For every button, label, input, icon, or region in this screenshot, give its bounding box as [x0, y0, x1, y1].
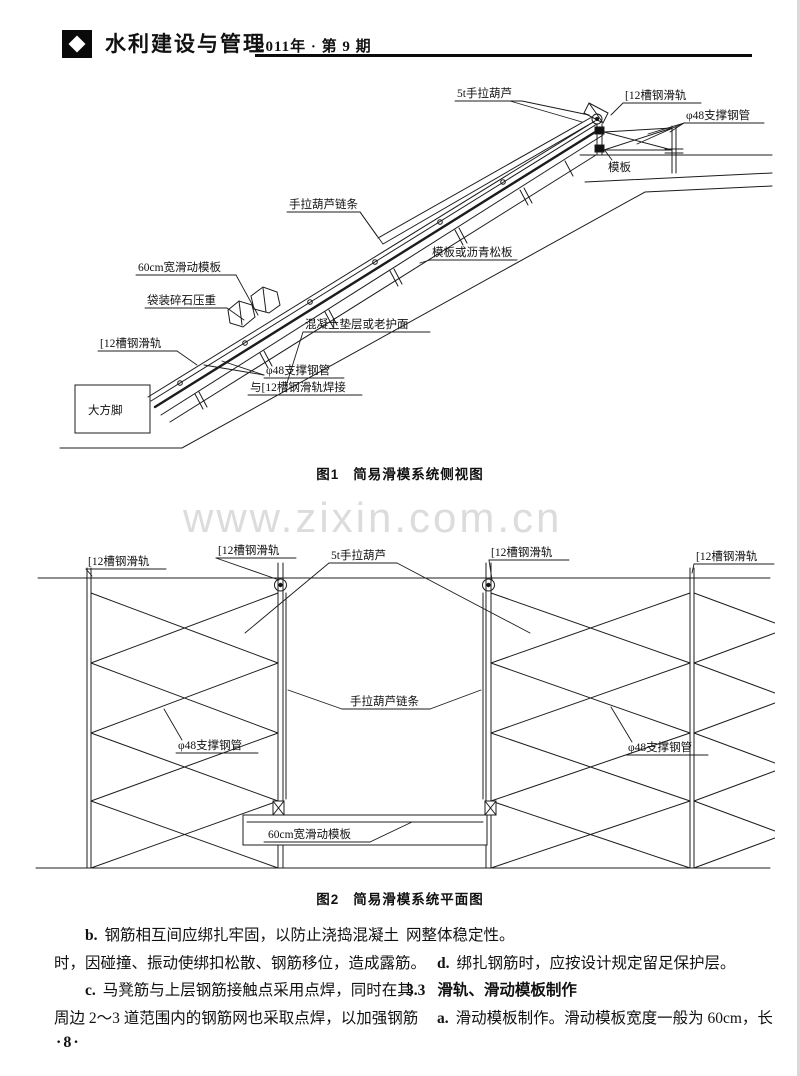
fig2-label-hoist: 5t手拉葫芦 — [331, 548, 386, 562]
fig1-label-support-pipe-weld-2: 与[12槽钢滑轨焊接 — [250, 380, 346, 394]
pulley-right — [483, 579, 495, 591]
fig1-label-hoist-chain: 手拉葫芦链条 — [289, 197, 358, 211]
figure2-caption-title: 简易滑模系统平面图 — [353, 892, 484, 907]
figure2-caption: 图2简易滑模系统平面图 — [0, 888, 800, 908]
rail-1 — [87, 568, 91, 868]
paragraph-line: 时，因碰撞、振动使绑扣松散、钢筋移位，造成露筋。 — [54, 950, 400, 978]
list-lead: a. — [437, 1010, 449, 1027]
fig2-label-rail-1: [12槽钢滑轨 — [88, 554, 150, 568]
section-number: 3.3 — [406, 982, 425, 999]
fig2-label-hoist-chain: 手拉葫芦链条 — [350, 694, 419, 708]
fig1-label-rail-top: [12槽钢滑轨 — [625, 88, 687, 102]
figure1-side-view-drawing: 5t手拉葫芦 [12槽钢滑轨 φ48支撑钢管 模板 手拉葫芦链条 模板或沥青松板… — [20, 70, 780, 500]
paragraph-line: a.滑动模板制作。滑动模板宽度一般为 60cm，长 — [406, 1005, 752, 1033]
watermark: www.zixin.com.cn — [183, 494, 562, 542]
journal-page: 水利建设与管理 2011年 · 第 9 期 — [0, 0, 800, 1076]
fig1-label-sliding-formwork: 60cm宽滑动模板 — [138, 260, 222, 274]
support-posts — [195, 161, 573, 409]
fig2-label-rail-2: [12槽钢滑轨 — [218, 543, 280, 557]
hoist-chain-lines — [378, 117, 595, 244]
scaffold-bracing-right — [491, 593, 690, 868]
figure1-caption-title: 简易滑模系统侧视图 — [353, 467, 484, 482]
figure2-caption-number: 图2 — [316, 892, 339, 907]
page-header: 水利建设与管理 2011年 · 第 9 期 — [60, 28, 760, 58]
fig1-label-concrete-cushion: 混凝土垫层或老护面 — [305, 317, 409, 331]
figure2-plan-view-drawing: [12槽钢滑轨 [12槽钢滑轨 5t手拉葫芦 [12槽钢滑轨 [12槽钢滑轨 手… — [30, 543, 775, 878]
berm-line-2 — [585, 173, 772, 182]
paragraph-line: c.马凳筋与上层钢筋接触点采用点焊，同时在其 — [54, 977, 400, 1005]
fig1-label-rail-bottom: [12槽钢滑轨 — [100, 336, 162, 350]
surface-board-line — [170, 155, 596, 422]
fig2-linework — [36, 558, 775, 868]
fig1-label-hoist: 5t手拉葫芦 — [457, 86, 512, 100]
paragraph-text: 周边 2～3 道范围内的钢筋网也采取点焊，以加强钢筋 — [54, 1010, 418, 1027]
rail-4 — [690, 568, 694, 868]
paragraph-line: b.钢筋相互间应绑扎牢固，以防止浇捣混凝土 — [54, 922, 400, 950]
journal-title: 水利建设与管理 — [105, 28, 266, 58]
pulley-left — [275, 579, 287, 591]
fig2-label-rail-3: [12槽钢滑轨 — [491, 545, 553, 559]
fig1-leaders — [98, 101, 764, 395]
fig1-label-support-pipe-weld-1: φ48支撑钢管 — [266, 363, 330, 377]
fig1-linework — [60, 101, 772, 448]
fig2-label-support-pipe-left: φ48支撑钢管 — [178, 738, 242, 752]
fig2-label-rail-4: [12槽钢滑轨 — [696, 549, 758, 563]
paragraph-line: 网整体稳定性。 — [406, 922, 752, 950]
page-number: ·8· — [56, 1034, 81, 1052]
paragraph-text: 时，因碰撞、振动使绑扣松散、钢筋移位，造成露筋。 — [54, 955, 426, 972]
section-title: 滑轨、滑动模板制作 — [437, 982, 577, 999]
body-column-right: 网整体稳定性。 d.绑扎钢筋时，应按设计规定留足保护层。 3.3滑轨、滑动模板制… — [406, 922, 752, 1032]
header-rule — [255, 54, 752, 57]
fig1-label-gravel-weight: 袋装碎石压重 — [147, 293, 216, 307]
paragraph-line: 周边 2～3 道范围内的钢筋网也采取点焊，以加强钢筋 — [54, 1005, 400, 1033]
scaffold-bracing-edge — [694, 593, 775, 868]
list-lead: b. — [85, 927, 98, 944]
list-lead: d. — [437, 955, 450, 972]
fig1-label-formwork: 模板 — [608, 160, 631, 174]
paragraph-text: 滑动模板制作。滑动模板宽度一般为 60cm，长 — [456, 1010, 773, 1027]
fig1-label-big-foot: 大方脚 — [88, 403, 123, 417]
figure1-caption: 图1简易滑模系统侧视图 — [0, 463, 800, 483]
fig1-label-support-pipe-top: φ48支撑钢管 — [686, 108, 750, 122]
section-heading: 3.3滑轨、滑动模板制作 — [406, 977, 752, 1005]
journal-issue: 2011年 · 第 9 期 — [257, 35, 372, 56]
fig1-label-surface-board: 模板或沥青松板 — [432, 245, 513, 259]
body-column-left: b.钢筋相互间应绑扎牢固，以防止浇捣混凝土 时，因碰撞、振动使绑扣松散、钢筋移位… — [54, 922, 400, 1032]
journal-logo-icon — [62, 30, 92, 58]
paragraph-text: 网整体稳定性。 — [406, 927, 515, 944]
fig2-label-support-pipe-right: φ48支撑钢管 — [628, 740, 692, 754]
paragraph-line: d.绑扎钢筋时，应按设计规定留足保护层。 — [406, 950, 752, 978]
paragraph-text: 钢筋相互间应绑扎牢固，以防止浇捣混凝土 — [105, 927, 400, 944]
paragraph-text: 绑扎钢筋时，应按设计规定留足保护层。 — [457, 955, 736, 972]
figure1-caption-number: 图1 — [316, 467, 339, 482]
fig2-label-sliding-formwork: 60cm宽滑动模板 — [268, 827, 352, 841]
list-lead: c. — [85, 982, 96, 999]
paragraph-text: 马凳筋与上层钢筋接触点采用点焊，同时在其 — [103, 982, 413, 999]
